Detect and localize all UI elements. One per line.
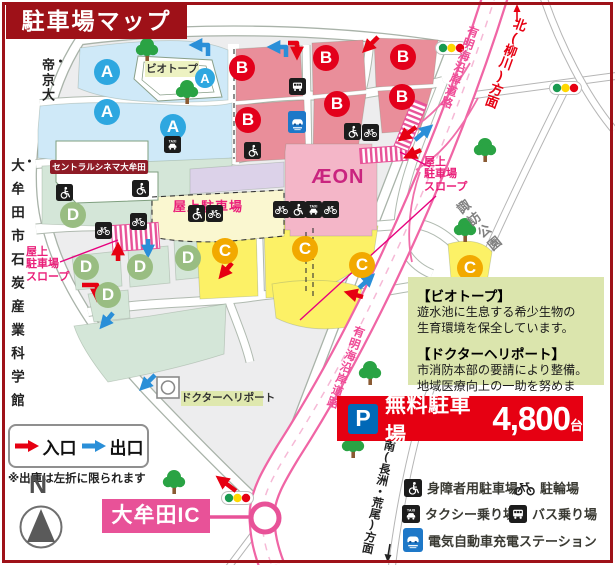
exit-label: 出口 xyxy=(110,434,144,459)
zone-b-marker: B xyxy=(313,45,339,71)
taxi-stand-icon xyxy=(164,136,181,153)
zone-a-marker: A xyxy=(195,68,215,88)
biotope-info-title: 【ビオトープ】 xyxy=(417,285,595,305)
legend-label: バス乗り場 xyxy=(532,504,597,523)
taxi-stand-icon xyxy=(305,201,322,218)
free-parking-banner: P 無料駐車場 4,800 台 xyxy=(337,396,583,441)
zone-b-marker: B xyxy=(324,91,350,117)
wheelchair-icon xyxy=(56,184,73,201)
compass xyxy=(21,507,62,548)
exit-arrow-icon xyxy=(81,440,106,452)
rooftop-slope-label-right: 屋上 駐車場 スロープ xyxy=(424,156,467,193)
zone-a-marker: A xyxy=(94,59,120,85)
north-letter: N xyxy=(29,471,47,500)
biotope-info-body: 遊水池に生息する希少生物の 生育環境を保全しています。 xyxy=(417,305,595,336)
wheelchair-icon xyxy=(289,201,306,218)
parking-count-unit: 台 xyxy=(570,415,583,434)
bicycle-parking-icon xyxy=(95,222,112,239)
wheelchair-icon xyxy=(404,479,422,497)
zone-c-marker: C xyxy=(349,252,375,278)
legend-item-bus-stop: バス乗り場 xyxy=(509,504,597,523)
zone-b-marker: B xyxy=(390,44,416,70)
zone-d-marker: D xyxy=(175,245,201,271)
zone-b-marker: B xyxy=(389,84,415,110)
rooftop-slope-label-left: 屋上 駐車場 スロープ xyxy=(26,246,69,283)
cinema-label: セントラルシネマ大牟田 xyxy=(50,160,148,174)
interchange-marker xyxy=(210,504,279,532)
page-title: 駐車場マップ xyxy=(6,4,187,39)
ev-charging-icon xyxy=(288,111,306,133)
biotope-label: ビオトープ xyxy=(145,61,199,77)
zone-a-marker: A xyxy=(94,99,120,125)
zone-d-marker: D xyxy=(60,202,86,228)
entrance-label: 入口 xyxy=(43,434,77,459)
legend-label: 身障者用駐車場 xyxy=(427,478,518,497)
legend-label: 電気自動車充電ステーション xyxy=(428,531,597,550)
bicycle-parking-icon xyxy=(206,205,223,222)
zone-b-marker: B xyxy=(235,107,261,133)
zone-d-marker: D xyxy=(127,254,153,280)
zone-c-marker: C xyxy=(212,238,238,264)
teikyo-univ-label: 帝京大 xyxy=(38,58,64,103)
bicycle-parking-icon xyxy=(322,201,339,218)
entrance-arrow-icon xyxy=(14,440,39,452)
taxi-icon xyxy=(402,505,420,523)
wheelchair-icon xyxy=(344,123,361,140)
parking-icon: P xyxy=(348,404,378,434)
heliport-icon xyxy=(157,377,179,398)
legend-item-disabled-parking: 身障者用駐車場 xyxy=(404,478,518,497)
bicycle-icon xyxy=(514,480,535,496)
aeon-logo: ÆON xyxy=(300,166,376,189)
bus-icon xyxy=(509,505,527,523)
zone-d-marker: D xyxy=(73,254,99,280)
coal-museum-label: 大牟田市石炭産業科学館 xyxy=(6,158,33,417)
legend-label: タクシー乗り場 xyxy=(425,504,516,523)
interchange-label: 大牟田IC xyxy=(102,499,210,533)
bicycle-parking-icon xyxy=(130,213,147,230)
legend-label: 駐輪場 xyxy=(540,478,579,497)
heliport-info-title: 【ドクターヘリポート】 xyxy=(417,343,595,363)
bicycle-parking-icon xyxy=(273,201,290,218)
legend-item-ev-charging: 電気自動車充電ステーション xyxy=(403,528,597,552)
legend-item-taxi-stand: タクシー乗り場 xyxy=(402,504,516,523)
wheelchair-icon xyxy=(132,180,149,197)
bus-stop-icon xyxy=(289,78,306,95)
wheelchair-icon xyxy=(244,142,261,159)
entrance-exit-legend: 入口 出口 xyxy=(8,424,149,468)
wheelchair-icon xyxy=(188,205,205,222)
zone-b-marker: B xyxy=(229,55,255,81)
info-box: 【ビオトープ】 遊水池に生息する希少生物の 生育環境を保全しています。 【ドクタ… xyxy=(408,277,604,385)
zone-d-marker: D xyxy=(95,282,121,308)
bicycle-parking-icon xyxy=(362,124,379,141)
free-parking-label: 無料駐車場 xyxy=(385,389,492,449)
zone-c-marker: C xyxy=(292,236,318,262)
legend-item-bicycle-parking: 駐輪場 xyxy=(514,478,579,497)
heliport-label: ドクターヘリポート xyxy=(181,391,263,406)
parking-count: 4,800 xyxy=(492,400,570,438)
parking-map-page: TAXI xyxy=(0,0,615,565)
ev-charging-icon xyxy=(403,528,423,552)
